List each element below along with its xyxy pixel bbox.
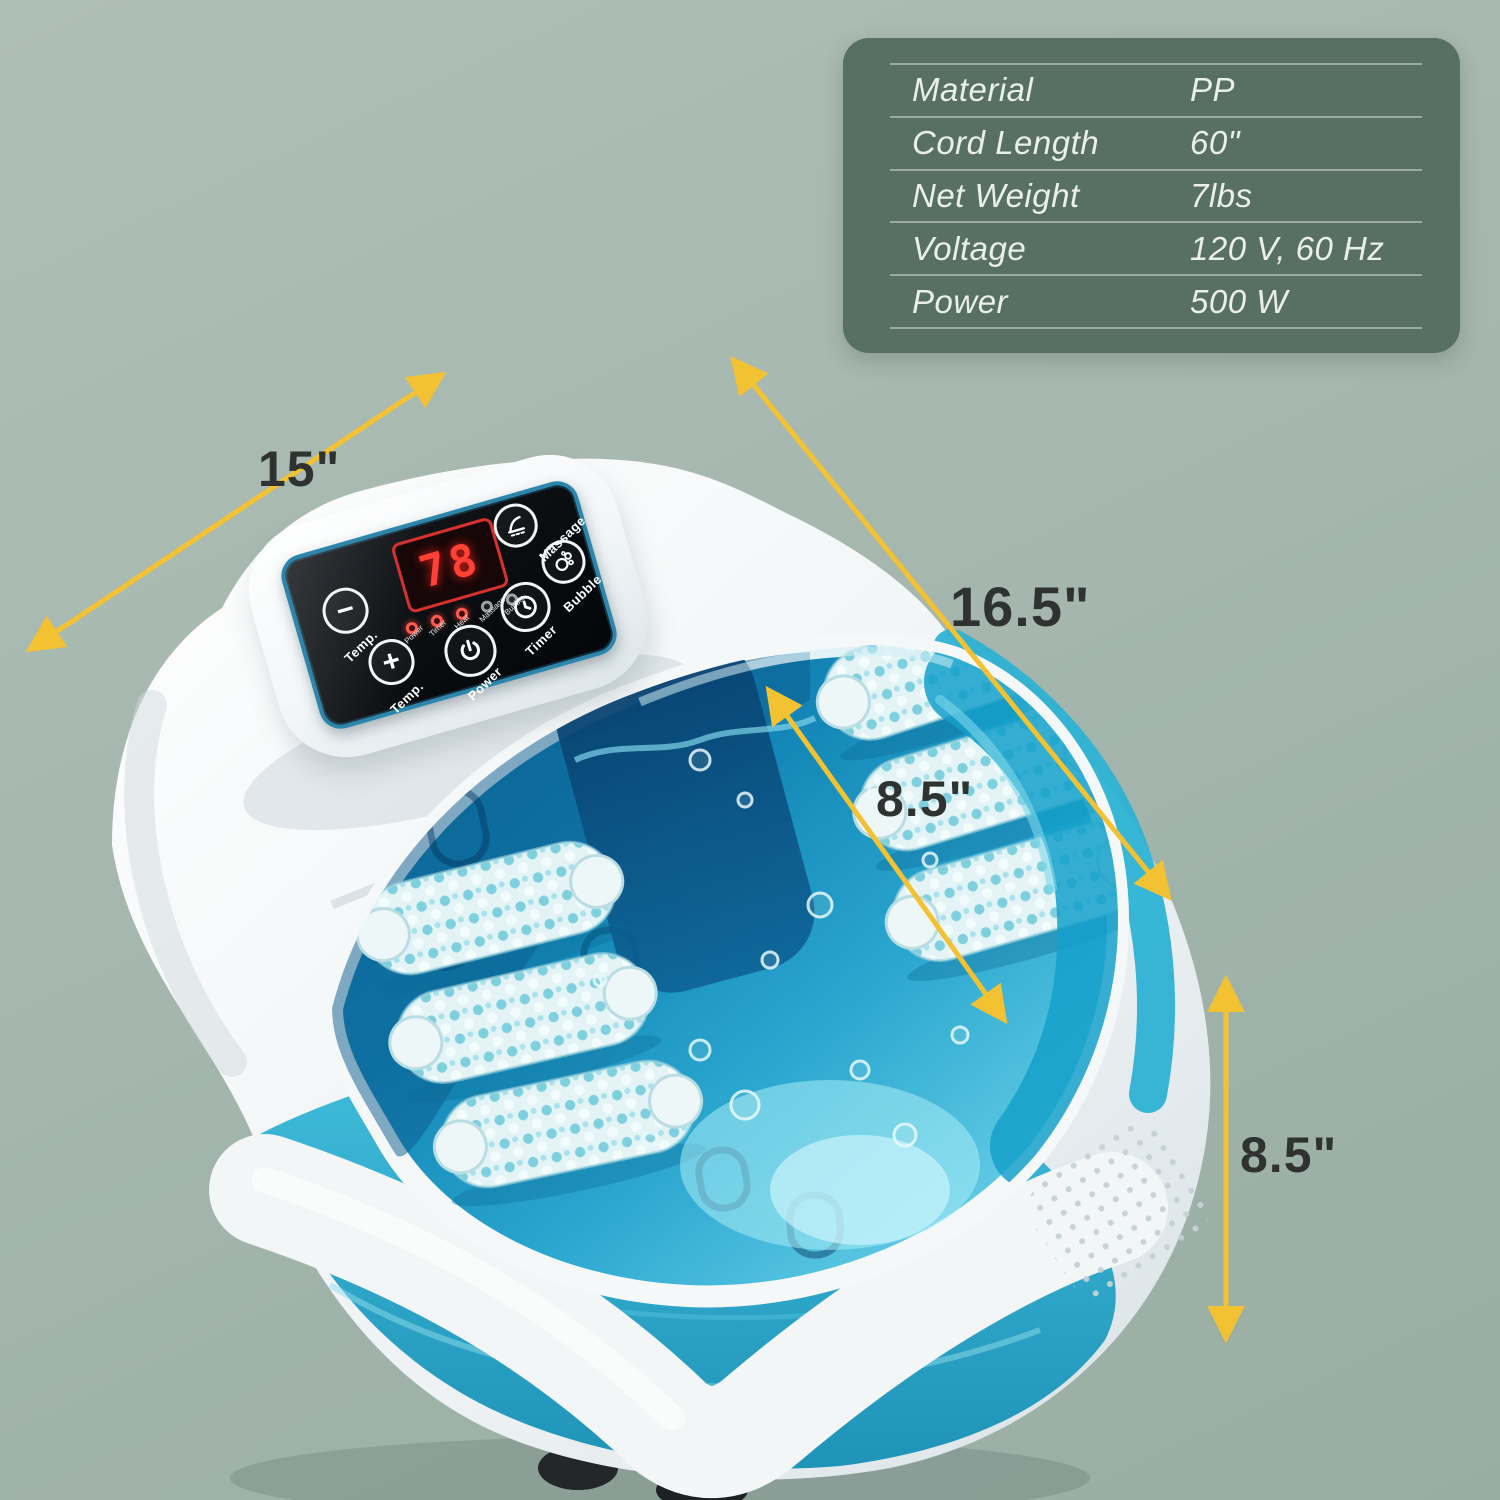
spec-label: Cord Length	[890, 124, 1190, 162]
spec-value: 60"	[1190, 124, 1422, 162]
spec-label: Material	[890, 71, 1190, 109]
spec-row-cord-length: Cord Length 60"	[890, 116, 1422, 169]
clock-icon	[508, 590, 543, 625]
spec-row-voltage: Voltage 120 V, 60 Hz	[890, 221, 1422, 274]
spec-rows: Material PP Cord Length 60" Net Weight 7…	[890, 63, 1422, 329]
minus-icon: −	[333, 594, 358, 628]
width-dimension-label: 15"	[258, 440, 340, 498]
spec-label: Voltage	[890, 230, 1190, 268]
spec-value: 500 W	[1190, 283, 1422, 321]
plus-icon: +	[379, 645, 404, 679]
spec-label: Power	[890, 283, 1190, 321]
bubbles-icon	[547, 546, 579, 578]
power-icon	[453, 634, 488, 669]
spec-label: Net Weight	[890, 177, 1190, 215]
spec-row-material: Material PP	[890, 63, 1422, 116]
spec-value: 7lbs	[1190, 177, 1422, 215]
product-infographic: 78 Power Timer Heat Massage Bubble − Tem…	[0, 0, 1500, 1500]
spec-value: PP	[1190, 71, 1422, 109]
water-foam	[680, 1080, 980, 1250]
foot-massage-icon	[500, 509, 532, 541]
inner-depth-dimension-label: 8.5"	[876, 770, 973, 828]
spec-value: 120 V, 60 Hz	[1190, 230, 1422, 268]
spec-row-net-weight: Net Weight 7lbs	[890, 169, 1422, 222]
spec-table: Material PP Cord Length 60" Net Weight 7…	[843, 38, 1460, 353]
spec-row-power: Power 500 W	[890, 274, 1422, 327]
diagonal-dimension-label: 16.5"	[950, 574, 1091, 639]
height-dimension-label: 8.5"	[1240, 1126, 1337, 1184]
